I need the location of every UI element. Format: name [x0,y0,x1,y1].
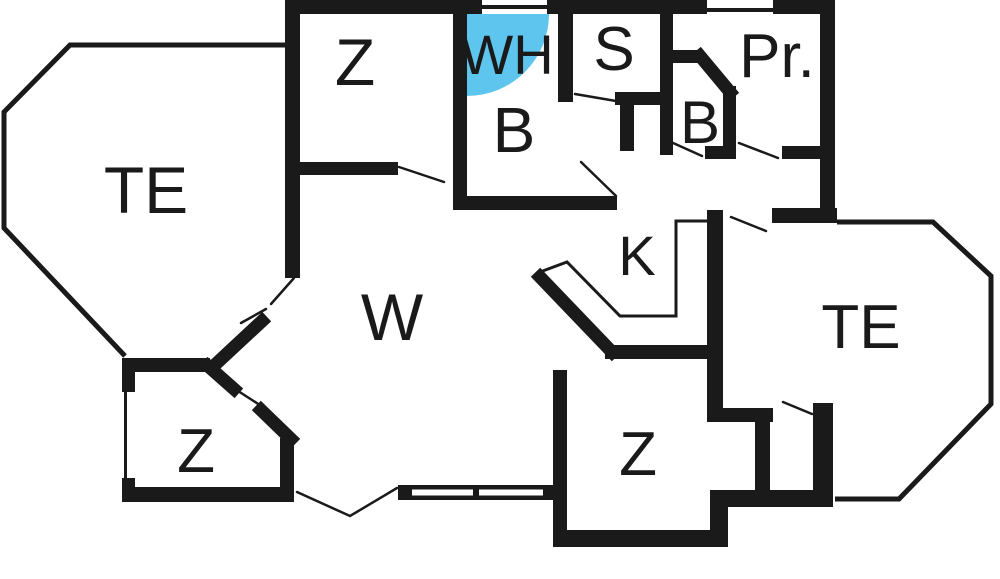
door-swing [575,94,616,101]
floor-plan-canvas: TE Z WH S Pr. B B K W TE Z Z [0,0,1000,579]
window-line [482,5,547,9]
wall-diagonal-z-room [208,366,234,389]
window-gap [122,392,135,478]
wall-segment [553,370,567,530]
wall-segment [620,103,634,151]
door-swing [731,217,766,231]
room-label-w: W [361,280,424,354]
room-label-pr: Pr. [739,22,815,91]
room-label-z-bottom-left: Z [177,417,215,486]
wall-segment [710,490,833,507]
wall-diagonal-hall [218,321,262,362]
wall-segment [453,196,617,210]
room-label-z-bottom-mid: Z [619,420,657,489]
room-label-b-small: B [680,89,720,156]
door-swing [235,389,269,411]
door-swing [783,402,812,414]
door-swing [271,278,294,304]
door-swing [739,143,778,158]
wall-segment [558,14,573,102]
wall-segment [707,210,723,422]
room-label-te-right: TE [821,293,900,362]
room-label-z-top: Z [335,25,375,99]
door-swing [399,167,444,182]
wall-segment [755,422,770,490]
door-swing-entrance [297,488,397,516]
wall-segment [660,14,673,155]
wall-segment [772,208,837,223]
floor-plan-svg: TE Z WH S Pr. B B K W TE Z Z [0,0,1000,579]
door-swing [581,162,616,196]
wall-segment-right [820,0,835,212]
room-label-te-left: TE [104,153,188,227]
wall-segment [707,408,773,422]
wall-diagonal-z-room [261,410,291,439]
window-mullion [473,487,479,498]
wall-segment [300,162,398,175]
room-label-s: S [593,15,634,84]
window-line [707,8,773,12]
room-label-k: K [618,224,655,287]
wall-diagonal-kitchen [540,277,612,352]
wall-segment-left [285,0,300,278]
room-label-wh: WH [460,23,553,86]
wall-diagonal-b-small [700,56,730,92]
wall-segment [553,530,728,547]
room-label-b-main: B [493,94,536,166]
wall-segment [122,487,294,502]
wall-segment [782,146,835,159]
window-line [124,392,127,478]
wall-segment [125,358,210,372]
